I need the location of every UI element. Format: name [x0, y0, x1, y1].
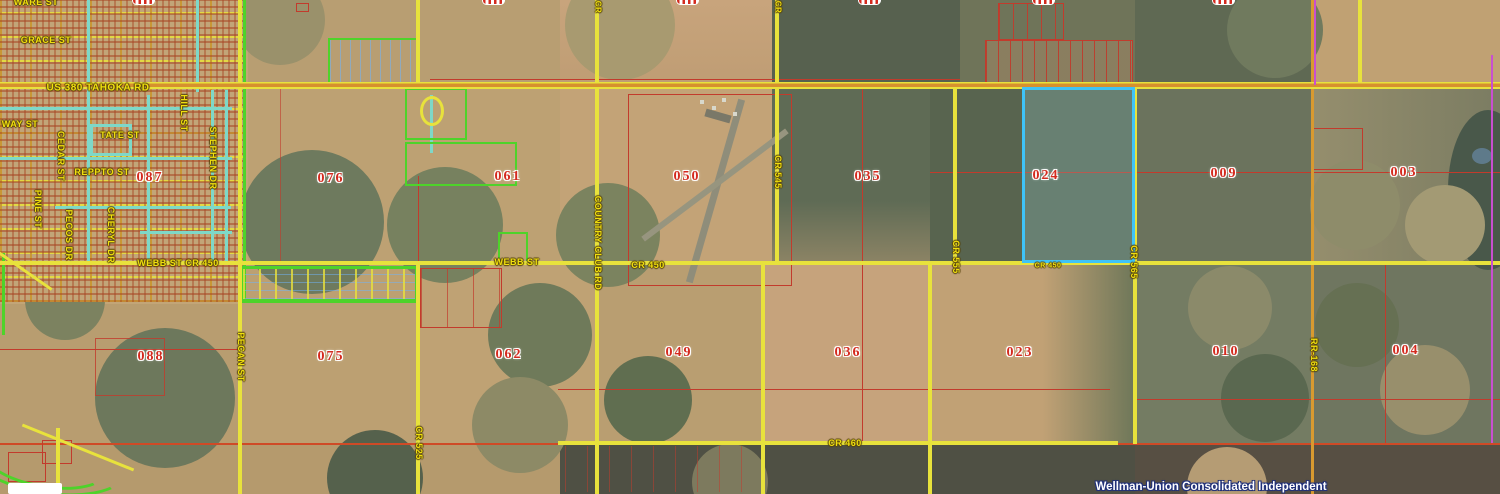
road-label-us-380-tahoka-rd: US 380 TAHOKA RD: [46, 83, 149, 94]
road-label-cr-460: CR 460: [828, 438, 862, 448]
section-label-003[interactable]: 003: [1391, 165, 1418, 181]
road-label-country-club-rd: COUNTRY CLUB RD: [593, 196, 603, 291]
section-label-075[interactable]: 075: [318, 349, 345, 365]
road-label-webb-st: WEBB ST: [495, 257, 540, 267]
road-label-pine-st: PINE ST: [33, 190, 43, 229]
section-label-024[interactable]: 024: [1033, 168, 1060, 184]
road-label-cr-450: CR 450: [1035, 263, 1062, 270]
section-label-049[interactable]: 049: [666, 345, 693, 361]
road-label-rr-168: RR-168: [1309, 338, 1319, 372]
cutoff-section-label: [132, 0, 155, 5]
section-label-076[interactable]: 076: [318, 171, 345, 187]
road-label-way-st: WAY ST: [2, 119, 39, 129]
road-label-pecan-st: PECAN ST: [236, 332, 246, 382]
road-label-cr-450: CR 450: [631, 260, 665, 270]
section-label-050[interactable]: 050: [674, 169, 701, 185]
section-label-009[interactable]: 009: [1211, 166, 1238, 182]
road-label-tate-st: TATE ST: [100, 130, 140, 140]
road-label-grace-st: GRACE ST: [21, 35, 72, 45]
cutoff-section-label: [482, 0, 505, 5]
road-label-cr: CR: [594, 1, 603, 14]
road-label-ware-st: WARE ST: [14, 0, 59, 7]
section-label-062[interactable]: 062: [496, 347, 523, 363]
section-label-088[interactable]: 088: [138, 349, 165, 365]
road-label-hill-st: HILL ST: [179, 94, 189, 131]
cutoff-section-label: [1032, 0, 1055, 5]
road-label-cheryl-dr: CHERYL DR: [106, 207, 116, 264]
road-label-stephen-dr: STEPHEN DR: [208, 126, 218, 189]
road-label-cedar-st: CEDAR ST: [56, 131, 66, 181]
cutoff-section-label: [858, 0, 881, 5]
road-label-reppto-st: REPPTO ST: [74, 167, 129, 177]
section-label-036[interactable]: 036: [835, 345, 862, 361]
road-label-cr-545: CR 545: [773, 155, 783, 189]
section-label-035[interactable]: 035: [855, 169, 882, 185]
road-label-cr-565: CR 565: [1129, 245, 1139, 279]
section-label-061[interactable]: 061: [495, 169, 522, 185]
cutoff-section-label: [676, 0, 699, 5]
road-label-cr: CR: [774, 1, 783, 14]
section-label-087[interactable]: 087: [137, 170, 164, 186]
road-label-webb-st-cr-450: WEBB ST CR 450: [137, 258, 219, 268]
section-label-023[interactable]: 023: [1007, 345, 1034, 361]
road-label-cr-555: CR 555: [951, 240, 961, 274]
road-label-pecos-dr: PECOS DR: [64, 209, 74, 260]
section-label-010[interactable]: 010: [1213, 344, 1240, 360]
cutoff-section-label: [1212, 0, 1235, 5]
district-label: Wellman-Union Consolidated Independent: [1095, 481, 1326, 493]
section-label-004[interactable]: 004: [1393, 343, 1420, 359]
map-canvas[interactable]: 0870760610500350240090030880750620490360…: [0, 0, 1500, 494]
labels-layer: 0870760610500350240090030880750620490360…: [0, 0, 1500, 494]
ui-white-box[interactable]: [8, 483, 62, 494]
road-label-cr-525: CR 525: [414, 426, 424, 460]
